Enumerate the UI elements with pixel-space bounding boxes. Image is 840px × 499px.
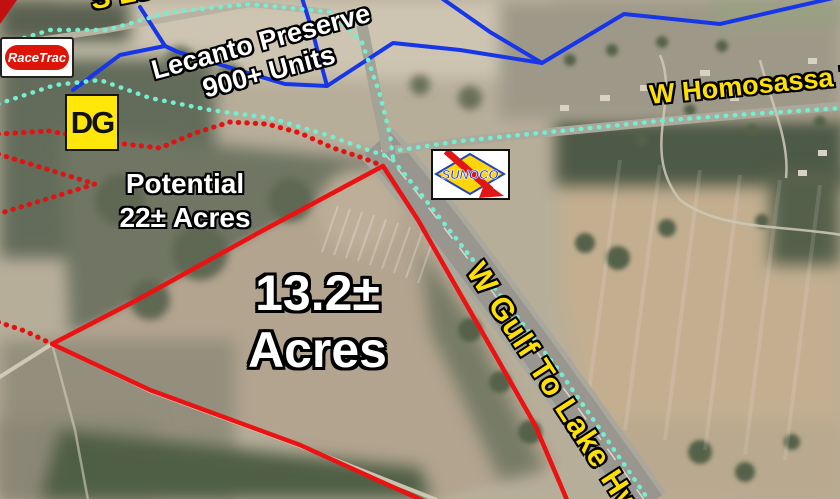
sunoco-emblem: SUNOCO xyxy=(433,151,508,198)
dollar-general-logo: DG xyxy=(65,94,119,151)
potential-label-line2: 22± Acres xyxy=(100,201,270,235)
racetrac-logo-text: RaceTrac xyxy=(8,50,66,65)
racetrac-logo: RaceTrac xyxy=(0,37,74,78)
sunoco-logo-text: SUNOCO xyxy=(441,167,498,182)
parcel-label-line2: Acres xyxy=(225,322,410,379)
potential-label-line1: Potential xyxy=(100,167,270,201)
sunoco-logo: SUNOCO xyxy=(431,149,510,200)
potential-acreage-label: Potential 22± Acres xyxy=(100,167,270,235)
aerial-site-map: RaceTrac DG SUNOCO S Lecanto Lecanto Pre… xyxy=(0,0,840,499)
parcel-label-line1: 13.2± xyxy=(225,265,410,322)
corner-red-graphic xyxy=(0,0,17,24)
dg-logo-text: DG xyxy=(71,105,114,141)
parcel-acreage-label: 13.2± Acres xyxy=(225,265,410,379)
racetrac-pill: RaceTrac xyxy=(5,45,69,70)
